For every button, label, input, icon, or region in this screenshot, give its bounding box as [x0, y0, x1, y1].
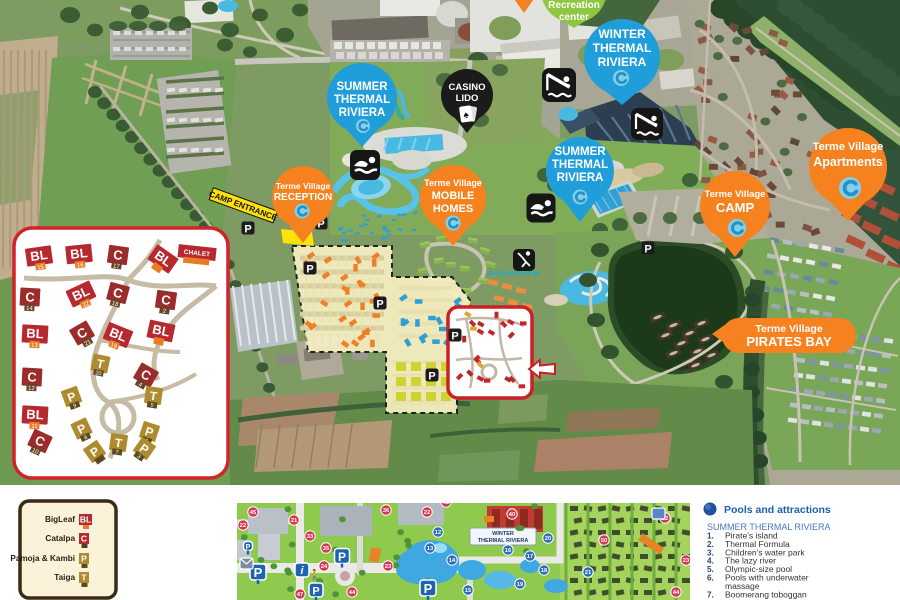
svg-text:P: P	[644, 243, 651, 255]
svg-text:Terme Village: Terme Village	[276, 181, 331, 191]
svg-text:22: 22	[240, 523, 246, 529]
svg-text:P: P	[424, 581, 433, 596]
svg-text:16: 16	[505, 548, 512, 554]
svg-text:MOBILE: MOBILE	[432, 190, 475, 202]
svg-text:P: P	[244, 223, 251, 235]
svg-text:Catalpa: Catalpa	[45, 534, 75, 543]
svg-text:44: 44	[673, 590, 680, 596]
svg-text:13: 13	[427, 546, 434, 552]
svg-text:18: 18	[541, 568, 548, 574]
svg-text:14: 14	[26, 306, 34, 312]
svg-text:23: 23	[683, 558, 690, 564]
svg-text:12: 12	[435, 530, 441, 536]
svg-text:RECEPTION: RECEPTION	[274, 192, 332, 203]
svg-text:33: 33	[307, 534, 314, 540]
svg-text:BigLeaf: BigLeaf	[45, 515, 75, 524]
svg-text:14: 14	[449, 558, 456, 564]
svg-text:35: 35	[323, 546, 330, 552]
svg-text:P: P	[246, 544, 251, 551]
svg-text:THERMAL: THERMAL	[593, 41, 652, 55]
svg-text:23: 23	[385, 564, 392, 570]
svg-text:20: 20	[545, 536, 551, 542]
svg-text:WINTER: WINTER	[492, 531, 514, 537]
svg-text:HOMES: HOMES	[433, 203, 473, 215]
svg-text:13: 13	[31, 343, 39, 349]
svg-text:RIVIERA: RIVIERA	[557, 172, 604, 184]
svg-text:P: P	[428, 370, 435, 382]
svg-text:BL: BL	[70, 245, 89, 262]
svg-text:21: 21	[585, 570, 592, 576]
svg-text:P: P	[451, 330, 458, 342]
svg-text:SUMMER: SUMMER	[554, 146, 606, 158]
svg-text:LIDO: LIDO	[456, 93, 479, 104]
svg-text:36: 36	[383, 508, 390, 514]
svg-text:P: P	[376, 298, 383, 310]
svg-text:47: 47	[297, 592, 303, 598]
svg-text:Terme Village: Terme Village	[813, 141, 884, 153]
svg-text:Boomerang toboggan: Boomerang toboggan	[725, 589, 807, 599]
svg-text:BL: BL	[26, 326, 44, 342]
svg-text:P: P	[306, 263, 313, 275]
svg-text:center: center	[559, 12, 589, 23]
svg-text:Pamoja & Kambi: Pamoja & Kambi	[10, 554, 75, 563]
svg-text:Taiga: Taiga	[54, 573, 75, 582]
svg-text:6.: 6.	[707, 574, 714, 583]
svg-text:44: 44	[349, 590, 356, 596]
svg-text:BL: BL	[26, 407, 44, 423]
svg-text:40: 40	[509, 512, 515, 518]
svg-text:17: 17	[527, 554, 533, 560]
svg-text:20: 20	[95, 370, 102, 377]
svg-text:C: C	[81, 534, 87, 544]
svg-text:15: 15	[465, 588, 472, 594]
svg-text:THERMAL: THERMAL	[334, 94, 390, 106]
svg-text:Recreation: Recreation	[548, 0, 600, 11]
svg-text:THERMAL: THERMAL	[552, 159, 608, 171]
svg-text:Pools and attractions: Pools and attractions	[724, 504, 831, 516]
svg-text:19: 19	[517, 582, 524, 588]
svg-text:45: 45	[250, 510, 257, 516]
svg-text:C: C	[27, 369, 38, 385]
svg-text:BL: BL	[29, 247, 48, 264]
svg-text:16: 16	[77, 263, 85, 270]
svg-text:🚶: 🚶	[309, 568, 321, 581]
svg-text:7.: 7.	[707, 590, 714, 599]
svg-text:SUMMER: SUMMER	[336, 81, 388, 93]
svg-text:50: 50	[601, 538, 607, 544]
svg-text:22: 22	[424, 510, 430, 516]
svg-text:21: 21	[291, 518, 298, 524]
svg-text:12: 12	[28, 386, 36, 392]
svg-text:CAMP: CAMP	[716, 200, 755, 215]
svg-text:C: C	[25, 289, 36, 305]
svg-text:T: T	[81, 573, 87, 583]
svg-text:RIVIERA: RIVIERA	[598, 55, 647, 69]
svg-text:24: 24	[321, 564, 328, 570]
svg-text:PIRATES BAY: PIRATES BAY	[746, 334, 832, 349]
svg-text:BL: BL	[80, 515, 91, 525]
svg-text:RIVIERA: RIVIERA	[339, 107, 386, 119]
svg-text:P: P	[254, 565, 263, 580]
svg-text:Terme Village: Terme Village	[424, 178, 482, 188]
svg-text:CASINO: CASINO	[449, 82, 486, 93]
svg-text:WINTER: WINTER	[598, 27, 646, 41]
svg-text:Terme Village: Terme Village	[705, 189, 766, 200]
svg-text:P: P	[81, 554, 87, 564]
svg-text:THERMAL RIVIERA: THERMAL RIVIERA	[478, 538, 529, 544]
svg-text:P: P	[312, 585, 319, 597]
svg-text:P: P	[338, 550, 346, 564]
svg-text:Apartments: Apartments	[813, 155, 883, 169]
